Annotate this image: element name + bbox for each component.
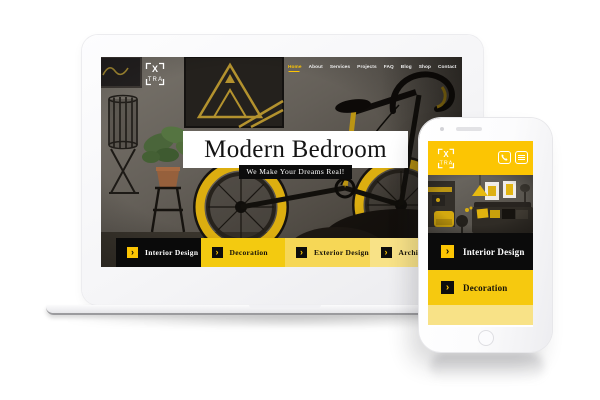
category-next-partial — [428, 305, 533, 325]
category-label: Interior Design — [463, 247, 525, 257]
menu-icon[interactable] — [515, 151, 528, 164]
arrow-glyph: › — [385, 248, 388, 257]
arrow-glyph: › — [131, 248, 134, 257]
mobile-header: X TRA — [428, 141, 533, 175]
arrow-right-icon: › — [441, 245, 454, 258]
arrow-right-icon: › — [127, 247, 138, 258]
hero-title-box: Modern Bedroom — [183, 131, 408, 168]
category-interior-design[interactable]: › Interior Design — [116, 238, 201, 267]
nav-item-about[interactable]: About — [309, 64, 323, 70]
nav-item-faq[interactable]: FAQ — [384, 64, 394, 70]
laptop-screen: X TRA Home About Services Projects FAQ B… — [101, 57, 462, 267]
phone-mockup: X TRA — [419, 118, 552, 352]
category-label: Interior Design — [145, 248, 198, 257]
nav-item-contact[interactable]: Contact — [438, 64, 456, 70]
nav-item-home[interactable]: Home — [288, 64, 302, 70]
site-logo-mobile[interactable]: X TRA — [437, 148, 455, 169]
arrow-right-icon: › — [212, 247, 223, 258]
arrow-glyph: › — [446, 247, 449, 257]
nav-item-services[interactable]: Services — [330, 64, 350, 70]
arrow-glyph: › — [216, 248, 219, 257]
phone-camera — [440, 127, 444, 131]
logo-top: X — [443, 150, 449, 159]
phone-screen: X TRA — [428, 141, 533, 327]
hero-title: Modern Bedroom — [204, 136, 387, 164]
category-buttons: › Interior Design › Decoration › Exterio… — [116, 238, 454, 267]
phone-speaker — [456, 127, 482, 131]
arrow-right-icon: › — [381, 247, 392, 258]
category-label: Exterior Design — [314, 248, 369, 257]
home-button[interactable] — [478, 330, 494, 346]
phone-reflection — [430, 353, 544, 381]
phone-photo — [428, 175, 533, 233]
site-logo[interactable]: X TRA — [145, 62, 165, 86]
category-decoration[interactable]: › Decoration — [201, 238, 286, 267]
category-interior-design-mobile[interactable]: › Interior Design — [428, 233, 533, 270]
category-decoration-mobile[interactable]: › Decoration — [428, 270, 533, 305]
category-label: Decoration — [463, 283, 508, 293]
arrow-glyph: › — [300, 248, 303, 257]
category-exterior-design[interactable]: › Exterior Design — [285, 238, 370, 267]
device-mockup-scene: X TRA Home About Services Projects FAQ B… — [0, 0, 600, 400]
nav-item-blog[interactable]: Blog — [401, 64, 412, 70]
logo-bottom: TRA — [148, 77, 164, 83]
hero-tagline: We Make Your Dreams Real! — [239, 165, 352, 179]
handset-glyph — [500, 153, 509, 162]
arrow-right-icon: › — [441, 281, 454, 294]
logo-bottom: TRA — [440, 161, 454, 167]
nav-item-projects[interactable]: Projects — [357, 64, 377, 70]
main-nav: Home About Services Projects FAQ Blog Sh… — [288, 64, 456, 70]
phone-icon[interactable] — [498, 151, 511, 164]
nav-item-shop[interactable]: Shop — [419, 64, 431, 70]
arrow-right-icon: › — [296, 247, 307, 258]
category-label: Decoration — [230, 248, 268, 257]
logo-top: X — [152, 64, 158, 74]
arrow-glyph: › — [446, 283, 449, 293]
